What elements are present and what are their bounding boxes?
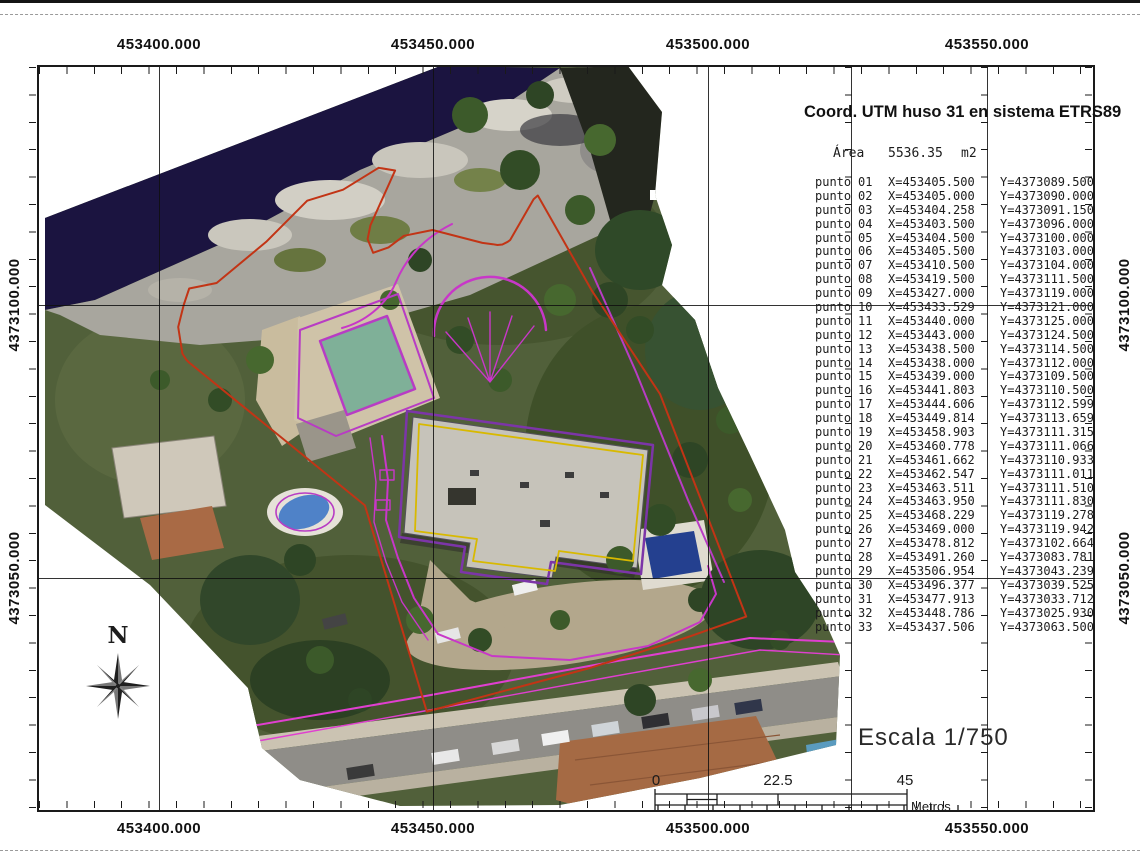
point-row: punto20X=453460.778Y=4373111.066	[815, 440, 1094, 454]
point-row-label: punto	[815, 357, 858, 371]
point-x: X=453449.814	[888, 412, 1000, 426]
point-x: X=453427.000	[888, 287, 1000, 301]
point-number: 06	[858, 245, 888, 259]
point-x: X=453443.000	[888, 329, 1000, 343]
point-row: punto15X=453439.000Y=4373109.500	[815, 370, 1094, 384]
point-y: Y=4373125.000	[1000, 315, 1094, 329]
point-y: Y=4373119.942	[1000, 523, 1094, 537]
point-row: punto32X=453448.786Y=4373025.930	[815, 607, 1094, 621]
point-number: 18	[858, 412, 888, 426]
frame-ticks-left	[29, 67, 36, 808]
point-y: Y=4373102.664	[1000, 537, 1094, 551]
point-row-label: punto	[815, 384, 858, 398]
point-y: Y=4373111.011	[1000, 468, 1094, 482]
point-row: punto06X=453405.500Y=4373103.000	[815, 245, 1094, 259]
point-y: Y=4373063.500	[1000, 621, 1094, 635]
point-y: Y=4373104.000	[1000, 259, 1094, 273]
point-row-label: punto	[815, 565, 858, 579]
axis-label-northing: 4373100.000	[1116, 245, 1132, 365]
point-number: 10	[858, 301, 888, 315]
point-row: punto23X=453463.511Y=4373111.510	[815, 482, 1094, 496]
point-row: punto01X=453405.500Y=4373089.500	[815, 176, 1094, 190]
compass-rose-icon	[82, 650, 154, 722]
point-row: punto08X=453419.500Y=4373111.500	[815, 273, 1094, 287]
point-x: X=453461.662	[888, 454, 1000, 468]
point-row: punto24X=453463.950Y=4373111.830	[815, 495, 1094, 509]
point-row: punto13X=453438.500Y=4373114.500	[815, 343, 1094, 357]
point-x: X=453410.500	[888, 259, 1000, 273]
scale-bar-unit: Metros	[911, 799, 951, 814]
point-row-label: punto	[815, 204, 858, 218]
point-row: punto17X=453444.606Y=4373112.599	[815, 398, 1094, 412]
point-row-label: punto	[815, 412, 858, 426]
point-number: 17	[858, 398, 888, 412]
coordinate-system-title: Coord. UTM huso 31 en sistema ETRS89	[804, 103, 1104, 122]
point-y: Y=4373112.599	[1000, 398, 1094, 412]
point-y: Y=4373025.930	[1000, 607, 1094, 621]
axis-label-northing: 4373050.000	[6, 518, 22, 638]
point-y: Y=4373112.000	[1000, 357, 1094, 371]
point-row: punto27X=453478.812Y=4373102.664	[815, 537, 1094, 551]
scale-bar-label-45: 45	[897, 772, 914, 789]
scale-bar-label-22-5: 22.5	[763, 772, 792, 789]
point-row-label: punto	[815, 468, 858, 482]
point-y: Y=4373124.500	[1000, 329, 1094, 343]
point-x: X=453478.812	[888, 537, 1000, 551]
point-x: X=453441.803	[888, 384, 1000, 398]
point-number: 32	[858, 607, 888, 621]
point-x: X=453469.000	[888, 523, 1000, 537]
point-x: X=453463.511	[888, 482, 1000, 496]
point-number: 09	[858, 287, 888, 301]
point-row-label: punto	[815, 523, 858, 537]
point-number: 28	[858, 551, 888, 565]
point-number: 26	[858, 523, 888, 537]
axis-label-northing: 4373100.000	[6, 245, 22, 365]
axis-label-easting: 453400.000	[89, 820, 229, 837]
point-row: punto22X=453462.547Y=4373111.011	[815, 468, 1094, 482]
point-number: 02	[858, 190, 888, 204]
point-row: punto07X=453410.500Y=4373104.000	[815, 259, 1094, 273]
point-row: punto29X=453506.954Y=4373043.239	[815, 565, 1094, 579]
point-y: Y=4373090.000	[1000, 190, 1094, 204]
point-y: Y=4373111.315	[1000, 426, 1094, 440]
point-x: X=453444.606	[888, 398, 1000, 412]
point-number: 08	[858, 273, 888, 287]
point-row-label: punto	[815, 301, 858, 315]
point-number: 04	[858, 218, 888, 232]
point-y: Y=4373100.000	[1000, 232, 1094, 246]
frame-ticks-top	[39, 67, 1089, 74]
point-row-label: punto	[815, 370, 858, 384]
point-row: punto11X=453440.000Y=4373125.000	[815, 315, 1094, 329]
point-number: 16	[858, 384, 888, 398]
point-row: punto31X=453477.913Y=4373033.712	[815, 593, 1094, 607]
point-row: punto28X=453491.260Y=4373083.781	[815, 551, 1094, 565]
point-row: punto30X=453496.377Y=4373039.525	[815, 579, 1094, 593]
point-row: punto33X=453437.506Y=4373063.500	[815, 621, 1094, 635]
point-row: punto26X=453469.000Y=4373119.942	[815, 523, 1094, 537]
point-x: X=453463.950	[888, 495, 1000, 509]
point-row: punto25X=453468.229Y=4373119.278	[815, 509, 1094, 523]
point-row-label: punto	[815, 232, 858, 246]
point-x: X=453419.500	[888, 273, 1000, 287]
point-x: X=453496.377	[888, 579, 1000, 593]
point-row-label: punto	[815, 273, 858, 287]
point-y: Y=4373113.659	[1000, 412, 1094, 426]
point-number: 24	[858, 495, 888, 509]
grid-line-453500	[708, 65, 709, 810]
point-x: X=453440.000	[888, 315, 1000, 329]
axis-label-northing: 4373050.000	[1116, 518, 1132, 638]
point-y: Y=4373039.525	[1000, 579, 1094, 593]
point-row: punto21X=453461.662Y=4373110.933	[815, 454, 1094, 468]
point-number: 01	[858, 176, 888, 190]
point-y: Y=4373083.781	[1000, 551, 1094, 565]
point-x: X=453437.506	[888, 621, 1000, 635]
point-number: 19	[858, 426, 888, 440]
point-x: X=453462.547	[888, 468, 1000, 482]
point-number: 07	[858, 259, 888, 273]
point-x: X=453477.913	[888, 593, 1000, 607]
survey-plan-sheet: 453400.000 453450.000 453500.000 453550.…	[0, 0, 1140, 855]
point-row: punto14X=453438.000Y=4373112.000	[815, 357, 1094, 371]
point-x: X=453403.500	[888, 218, 1000, 232]
point-number: 15	[858, 370, 888, 384]
point-y: Y=4373111.510	[1000, 482, 1094, 496]
axis-label-easting: 453500.000	[638, 820, 778, 837]
point-row: punto16X=453441.803Y=4373110.500	[815, 384, 1094, 398]
point-y: Y=4373114.500	[1000, 343, 1094, 357]
point-row: punto12X=453443.000Y=4373124.500	[815, 329, 1094, 343]
point-y: Y=4373089.500	[1000, 176, 1094, 190]
point-row: punto03X=453404.258Y=4373091.150	[815, 204, 1094, 218]
point-row-label: punto	[815, 607, 858, 621]
point-y: Y=4373091.150	[1000, 204, 1094, 218]
point-row-label: punto	[815, 454, 858, 468]
point-row-label: punto	[815, 315, 858, 329]
point-y: Y=4373121.000	[1000, 301, 1094, 315]
point-y: Y=4373111.066	[1000, 440, 1094, 454]
point-row-label: punto	[815, 398, 858, 412]
point-number: 13	[858, 343, 888, 357]
point-row-label: punto	[815, 621, 858, 635]
axis-label-easting: 453550.000	[917, 820, 1057, 837]
point-y: Y=4373109.500	[1000, 370, 1094, 384]
point-y: Y=4373110.933	[1000, 454, 1094, 468]
point-y: Y=4373119.000	[1000, 287, 1094, 301]
point-x: X=453468.229	[888, 509, 1000, 523]
point-x: X=453460.778	[888, 440, 1000, 454]
point-row-label: punto	[815, 259, 858, 273]
point-x: X=453405.500	[888, 245, 1000, 259]
point-row: punto05X=453404.500Y=4373100.000	[815, 232, 1094, 246]
area-unit: m2	[961, 146, 977, 161]
point-x: X=453405.000	[888, 190, 1000, 204]
point-y: Y=4373110.500	[1000, 384, 1094, 398]
point-row-label: punto	[815, 440, 858, 454]
area-line: Área 5536.35 m2	[833, 146, 977, 161]
axis-label-easting: 453450.000	[363, 820, 503, 837]
axis-label-easting: 453550.000	[917, 36, 1057, 53]
scale-bar: 0 22.5 45 Metros	[640, 765, 980, 820]
point-y: Y=4373111.500	[1000, 273, 1094, 287]
point-number: 12	[858, 329, 888, 343]
point-y: Y=4373096.000	[1000, 218, 1094, 232]
point-row-label: punto	[815, 329, 858, 343]
point-list: punto01X=453405.500Y=4373089.500punto02X…	[815, 176, 1094, 634]
point-row-label: punto	[815, 482, 858, 496]
point-row-label: punto	[815, 551, 858, 565]
point-row: punto09X=453427.000Y=4373119.000	[815, 287, 1094, 301]
point-row-label: punto	[815, 509, 858, 523]
point-row-label: punto	[815, 190, 858, 204]
grid-line-453450	[433, 65, 434, 810]
point-number: 27	[858, 537, 888, 551]
point-number: 31	[858, 593, 888, 607]
axis-label-easting: 453450.000	[363, 36, 503, 53]
point-row: punto04X=453403.500Y=4373096.000	[815, 218, 1094, 232]
point-row-label: punto	[815, 176, 858, 190]
north-label: N	[98, 622, 138, 649]
point-x: X=453404.258	[888, 204, 1000, 218]
point-row-label: punto	[815, 287, 858, 301]
axis-label-easting: 453400.000	[89, 36, 229, 53]
point-number: 30	[858, 579, 888, 593]
point-y: Y=4373103.000	[1000, 245, 1094, 259]
point-row: punto18X=453449.814Y=4373113.659	[815, 412, 1094, 426]
point-row-label: punto	[815, 593, 858, 607]
point-number: 21	[858, 454, 888, 468]
point-row-label: punto	[815, 245, 858, 259]
area-value: 5536.35	[888, 146, 961, 161]
point-y: Y=4373119.278	[1000, 509, 1094, 523]
point-row-label: punto	[815, 579, 858, 593]
point-x: X=453448.786	[888, 607, 1000, 621]
point-x: X=453458.903	[888, 426, 1000, 440]
point-number: 33	[858, 621, 888, 635]
point-number: 11	[858, 315, 888, 329]
point-number: 14	[858, 357, 888, 371]
point-row: punto02X=453405.000Y=4373090.000	[815, 190, 1094, 204]
grid-line-453400	[159, 65, 160, 810]
point-row-label: punto	[815, 537, 858, 551]
point-y: Y=4373111.830	[1000, 495, 1094, 509]
point-number: 03	[858, 204, 888, 218]
point-x: X=453404.500	[888, 232, 1000, 246]
point-x: X=453491.260	[888, 551, 1000, 565]
point-x: X=453405.500	[888, 176, 1000, 190]
point-row: punto10X=453433.529Y=4373121.000	[815, 301, 1094, 315]
point-number: 25	[858, 509, 888, 523]
area-label: Área	[833, 146, 888, 161]
point-number: 23	[858, 482, 888, 496]
point-number: 05	[858, 232, 888, 246]
point-number: 22	[858, 468, 888, 482]
point-y: Y=4373043.239	[1000, 565, 1094, 579]
point-x: X=453439.000	[888, 370, 1000, 384]
point-x: X=453506.954	[888, 565, 1000, 579]
point-y: Y=4373033.712	[1000, 593, 1094, 607]
point-row-label: punto	[815, 343, 858, 357]
point-number: 29	[858, 565, 888, 579]
axis-label-easting: 453500.000	[638, 36, 778, 53]
point-row-label: punto	[815, 426, 858, 440]
scale-text: Escala 1/750	[858, 724, 1009, 752]
scale-bar-label-0: 0	[652, 772, 660, 789]
point-row-label: punto	[815, 495, 858, 509]
point-number: 20	[858, 440, 888, 454]
point-row: punto19X=453458.903Y=4373111.315	[815, 426, 1094, 440]
point-row-label: punto	[815, 218, 858, 232]
point-x: X=453438.000	[888, 357, 1000, 371]
point-x: X=453438.500	[888, 343, 1000, 357]
point-x: X=453433.529	[888, 301, 1000, 315]
